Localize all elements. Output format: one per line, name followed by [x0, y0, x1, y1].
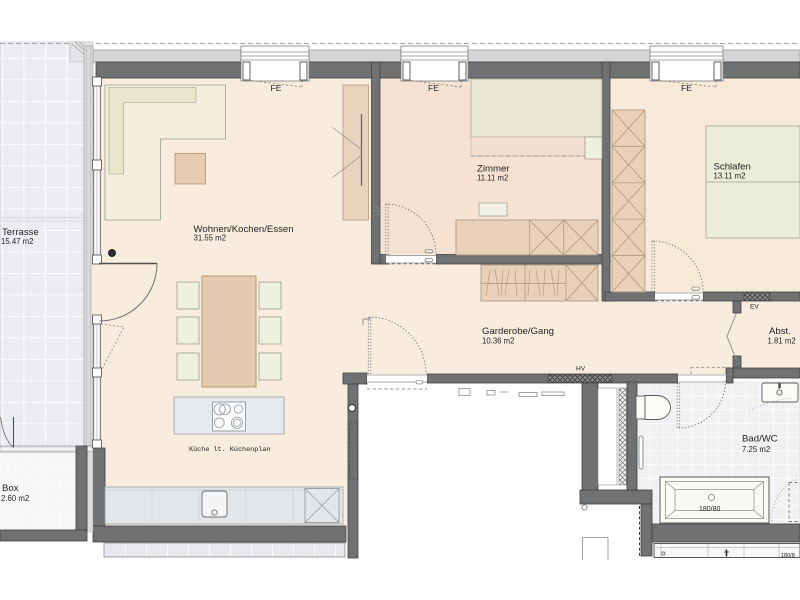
svg-text:Garderobe/Gang: Garderobe/Gang	[482, 326, 554, 337]
svg-text:15.47 m2: 15.47 m2	[1, 237, 34, 246]
svg-text:1.81 m2: 1.81 m2	[768, 337, 796, 346]
svg-text:Box: Box	[2, 483, 19, 494]
svg-text:180/8: 180/8	[781, 553, 795, 559]
svg-text:10.36 m2: 10.36 m2	[482, 337, 515, 346]
svg-text:31.55 m2: 31.55 m2	[194, 234, 227, 243]
svg-text:HV: HV	[576, 366, 586, 373]
svg-text:180/80: 180/80	[699, 506, 721, 513]
svg-text:FE: FE	[271, 83, 282, 93]
svg-text:11.11 m2: 11.11 m2	[477, 174, 508, 183]
svg-text:Bad/WC: Bad/WC	[742, 434, 778, 445]
svg-text:Küche lt. Küchenplan: Küche lt. Küchenplan	[189, 446, 271, 454]
svg-text:2.60 m2: 2.60 m2	[1, 494, 29, 503]
svg-text:FE: FE	[428, 83, 439, 93]
svg-text:7.25 m2: 7.25 m2	[742, 445, 770, 454]
svg-text:Abst.: Abst.	[769, 326, 791, 337]
svg-text:EV: EV	[750, 304, 759, 311]
svg-text:13.11 m2: 13.11 m2	[714, 172, 746, 181]
svg-text:FE: FE	[681, 83, 692, 93]
